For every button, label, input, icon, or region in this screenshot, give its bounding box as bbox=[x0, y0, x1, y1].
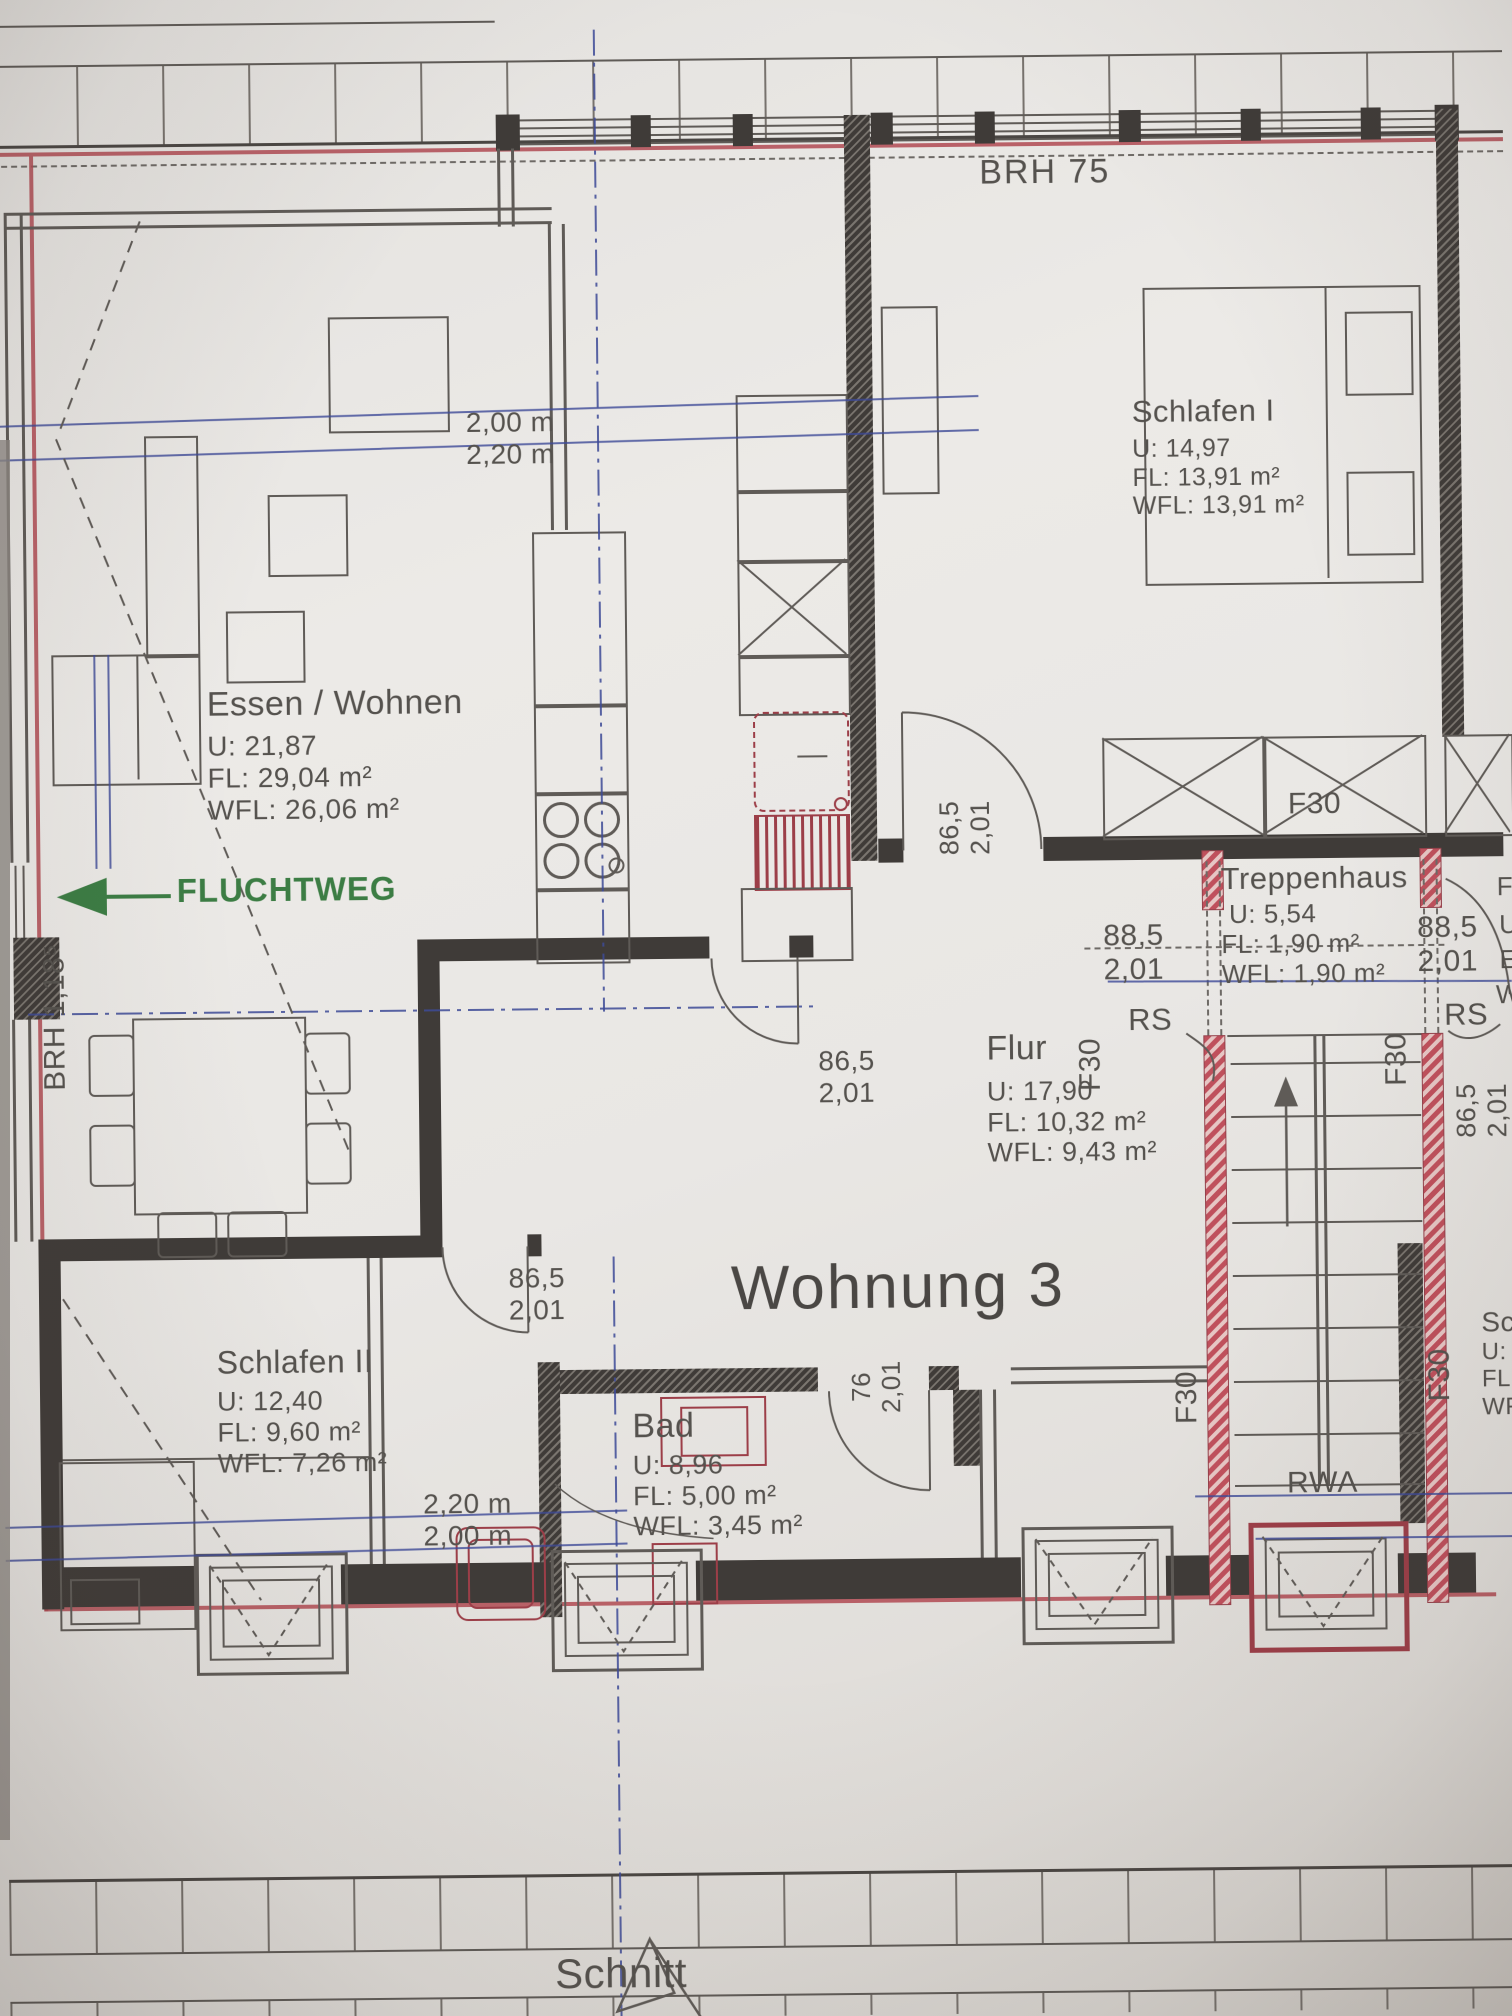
door-arc-kitchen bbox=[711, 958, 798, 1045]
room-wfl: WFL: 13,91 m² bbox=[1133, 491, 1305, 521]
room-wfl: WFL: 1,90 m² bbox=[1222, 958, 1409, 990]
section-label: Schnitt bbox=[555, 1949, 687, 1998]
room-label-bad: Bad U: 8,96 FL: 5,00 m² WFL: 3,45 m² bbox=[632, 1406, 803, 1543]
door-width: 86,5 bbox=[1451, 1065, 1483, 1155]
room-name: Treppenhaus bbox=[1220, 859, 1407, 896]
stair-wall-right bbox=[1421, 1033, 1449, 1603]
door-height: 2,01 bbox=[876, 1344, 907, 1428]
entry-door-jamb bbox=[929, 1366, 959, 1390]
chair bbox=[88, 1035, 135, 1097]
door-dim-treppenhaus-left: 88,5 2,01 bbox=[1103, 919, 1164, 988]
chair bbox=[305, 1122, 352, 1184]
outer-wall-left bbox=[28, 1020, 33, 1242]
pillow bbox=[70, 1578, 140, 1625]
room-label-flur: Flur U: 17,90 FL: 10,32 m² WFL: 9,43 m² bbox=[986, 1028, 1157, 1169]
room-name: Schlafen I bbox=[1132, 392, 1304, 429]
room-label-schlafen2: Schlafen II U: 12,40 FL: 9,60 m² WFL: 7,… bbox=[216, 1343, 387, 1480]
window-jamb bbox=[631, 115, 651, 147]
kitchen-cabinet bbox=[736, 394, 849, 494]
room-wfl: WF bbox=[1482, 1393, 1512, 1421]
door-height: 2,01 bbox=[489, 1294, 585, 1327]
room-name: Flur bbox=[986, 1028, 1156, 1069]
outer-wall-left bbox=[20, 213, 30, 863]
hob-ring bbox=[543, 802, 579, 838]
apartment-title: Wohnung 3 bbox=[731, 1251, 1066, 1325]
stair-wall-inner bbox=[1397, 1243, 1425, 1523]
sofa bbox=[144, 436, 200, 659]
hob-knob bbox=[608, 857, 624, 873]
window-jamb bbox=[975, 111, 995, 143]
door-width: 76 bbox=[847, 1345, 878, 1429]
room-name: Essen / Wohnen bbox=[207, 683, 463, 724]
outer-wall-left bbox=[12, 1020, 17, 1242]
window-jamb bbox=[1241, 109, 1261, 141]
outer-wall-bottom bbox=[1166, 1555, 1249, 1596]
edge-partial: E bbox=[1499, 945, 1512, 975]
room-label-treppenhaus: Treppenhaus U: 5,54 FL: 1,90 m² WFL: 1,9… bbox=[1220, 859, 1408, 989]
room-fl: FL: 13,91 m² bbox=[1132, 462, 1304, 492]
dim-value: 2,00 m bbox=[466, 406, 555, 439]
kitchen-sink bbox=[753, 711, 850, 812]
roof-line bbox=[0, 21, 495, 28]
kitchen-island bbox=[536, 887, 631, 964]
kitchen-island bbox=[534, 703, 629, 796]
door-height: 2,01 bbox=[1481, 1065, 1512, 1155]
room-fl: FL: 1,90 m² bbox=[1221, 928, 1408, 960]
pillow bbox=[1346, 471, 1415, 556]
window-jamb bbox=[871, 113, 893, 145]
window-sill-label-top: BRH 75 bbox=[979, 152, 1110, 192]
roof-window-frame bbox=[1048, 1552, 1147, 1617]
partition-kitchen bbox=[548, 224, 554, 530]
kitchen-fridge bbox=[737, 559, 850, 659]
outer-wall-top-left bbox=[4, 207, 552, 216]
door-height: 2,01 bbox=[799, 1076, 895, 1109]
room-fl: FL: 9,60 m² bbox=[217, 1416, 387, 1449]
stair-stringer bbox=[1322, 1036, 1330, 1486]
dim-label-bottom-window: 2,20 m 2,00 m bbox=[423, 1488, 512, 1553]
outer-wall-top-left bbox=[4, 221, 552, 230]
stair-direction-arrow bbox=[1274, 1076, 1300, 1226]
door-dim-schlafen1: 86,5 2,01 bbox=[934, 782, 999, 873]
room-label-essen: Essen / Wohnen U: 21,87 FL: 29,04 m² WFL… bbox=[207, 683, 464, 826]
room-fl: FL: 5,00 m² bbox=[633, 1479, 803, 1512]
dim-value: 2,20 m bbox=[423, 1488, 512, 1521]
door-width: 86,5 bbox=[934, 783, 966, 873]
dim-value: 2,20 m bbox=[466, 438, 555, 471]
chair bbox=[89, 1125, 136, 1187]
kitchen-dishwasher bbox=[754, 814, 851, 891]
door-height: 2,01 bbox=[964, 782, 996, 872]
room-wfl: WFL: 3,45 m² bbox=[633, 1510, 803, 1543]
roof-window-frame bbox=[577, 1575, 676, 1644]
wall-bad-right bbox=[993, 1390, 998, 1560]
wardrobe-x bbox=[1444, 734, 1512, 837]
room-wfl: WFL: 26,06 m² bbox=[208, 792, 464, 827]
armchair bbox=[226, 611, 306, 684]
sofa-corner bbox=[51, 654, 201, 787]
room-fl: FL: 29,04 m² bbox=[207, 760, 463, 795]
f30-label: F30 bbox=[1379, 1020, 1414, 1098]
hob-ring bbox=[543, 843, 579, 879]
wall-neighbor-right bbox=[1436, 109, 1465, 737]
edge-partial: W bbox=[1496, 980, 1512, 1010]
edge-partial: F bbox=[1497, 872, 1512, 902]
window-jamb bbox=[1361, 107, 1381, 139]
floorplan-photo: BRH 75 Schlafen I U: 14,97 FL: 13,91 m² … bbox=[0, 0, 1512, 2016]
door-dim-treppenhaus-right: 88,5 2,01 bbox=[1417, 910, 1478, 979]
sink-tap bbox=[797, 755, 827, 757]
wall-hall-vertical bbox=[417, 961, 442, 1237]
dining-table bbox=[132, 1017, 308, 1216]
room-name: Sc bbox=[1481, 1306, 1512, 1338]
window-jamb bbox=[496, 114, 520, 150]
wardrobe bbox=[881, 306, 940, 495]
pillow bbox=[1345, 311, 1414, 396]
f30-label: F30 bbox=[1288, 787, 1342, 822]
wall-bad-top bbox=[560, 1367, 818, 1394]
wall-treppenhaus-top bbox=[878, 838, 903, 862]
f30-label: F30 bbox=[1170, 1358, 1205, 1436]
chair bbox=[304, 1032, 351, 1094]
room-u: U: 5,54 bbox=[1229, 898, 1408, 929]
door-width: 88,5 bbox=[1417, 910, 1478, 945]
room-fl: FL: 10,32 m² bbox=[987, 1105, 1157, 1138]
door-dim-schlafen2: 86,5 2,01 bbox=[489, 1262, 586, 1327]
floorplan-drawing: BRH 75 Schlafen I U: 14,97 FL: 13,91 m² … bbox=[0, 0, 1512, 2016]
rwa-skylight-frame bbox=[1278, 1551, 1375, 1618]
room-name: Schlafen II bbox=[216, 1343, 386, 1381]
outer-wall-left bbox=[4, 213, 14, 863]
room-fl: FL: bbox=[1482, 1365, 1512, 1393]
chair bbox=[227, 1211, 287, 1258]
edge-room-partial: Sc U: 1 FL: WF bbox=[1481, 1306, 1512, 1420]
room-wfl: WFL: 9,43 m² bbox=[987, 1136, 1157, 1169]
roof-window-frame bbox=[222, 1579, 321, 1648]
stair-stringer bbox=[1313, 1036, 1321, 1486]
dim-value: 2,00 m bbox=[423, 1519, 512, 1552]
wall-bad-right bbox=[979, 1390, 984, 1560]
window-jamb bbox=[1119, 110, 1141, 142]
kitchen-cabinet bbox=[741, 887, 854, 962]
outer-wall-bottom bbox=[696, 1557, 1021, 1600]
room-u: U: 8,96 bbox=[633, 1448, 803, 1481]
room-label-schlafen1: Schlafen I U: 14,97 FL: 13,91 m² WFL: 13… bbox=[1132, 392, 1305, 521]
window-jamb bbox=[733, 114, 753, 146]
kitchen-cabinet bbox=[738, 654, 851, 716]
room-u: U: 12,40 bbox=[217, 1385, 387, 1418]
room-u: U: 14,97 bbox=[1132, 434, 1304, 464]
entry-door-jamb bbox=[953, 1390, 980, 1466]
room-wfl: WFL: 7,26 m² bbox=[218, 1447, 388, 1480]
chair bbox=[157, 1212, 217, 1259]
edge-partial: U bbox=[1499, 910, 1512, 940]
wall-schlafen2-top bbox=[527, 1234, 541, 1256]
partition-kitchen bbox=[562, 224, 568, 530]
room-u: U: 17,90 bbox=[987, 1075, 1157, 1108]
door-dim-right-edge: 86,5 2,01 bbox=[1451, 1065, 1512, 1156]
room-u: U: 1 bbox=[1481, 1338, 1512, 1366]
escape-arrow-shaft bbox=[105, 894, 171, 899]
room-u: U: 21,87 bbox=[207, 728, 463, 763]
rwa-label: RWA bbox=[1287, 1466, 1359, 1501]
door-width: 86,5 bbox=[489, 1262, 585, 1295]
dim-label-top-window: 2,00 m 2,20 m bbox=[466, 406, 555, 471]
kitchen-cabinet bbox=[737, 489, 850, 564]
f30-label: F30 bbox=[1422, 1336, 1457, 1414]
door-dim-flur: 86,5 2,01 bbox=[798, 1045, 895, 1110]
window-sill-label-left: BRH 1,18⁵ bbox=[37, 887, 84, 1147]
door-width: 88,5 bbox=[1103, 919, 1164, 954]
coffee-table bbox=[268, 494, 349, 577]
rs-label-right: RS bbox=[1444, 996, 1488, 1032]
room-name: Bad bbox=[632, 1406, 802, 1447]
sink-drain bbox=[834, 797, 848, 811]
stair-wall-left bbox=[1203, 1035, 1231, 1605]
wardrobe-x bbox=[1102, 737, 1267, 841]
door-height: 2,01 bbox=[1103, 953, 1164, 988]
door-width: 86,5 bbox=[798, 1045, 894, 1078]
door-dim-entry: 76 2,01 bbox=[847, 1344, 906, 1429]
door-height: 2,01 bbox=[1417, 945, 1478, 980]
kitchen-island bbox=[532, 531, 628, 708]
escape-route-label: FLUCHTWEG bbox=[177, 870, 397, 910]
roof-slope-dashed bbox=[56, 221, 142, 435]
